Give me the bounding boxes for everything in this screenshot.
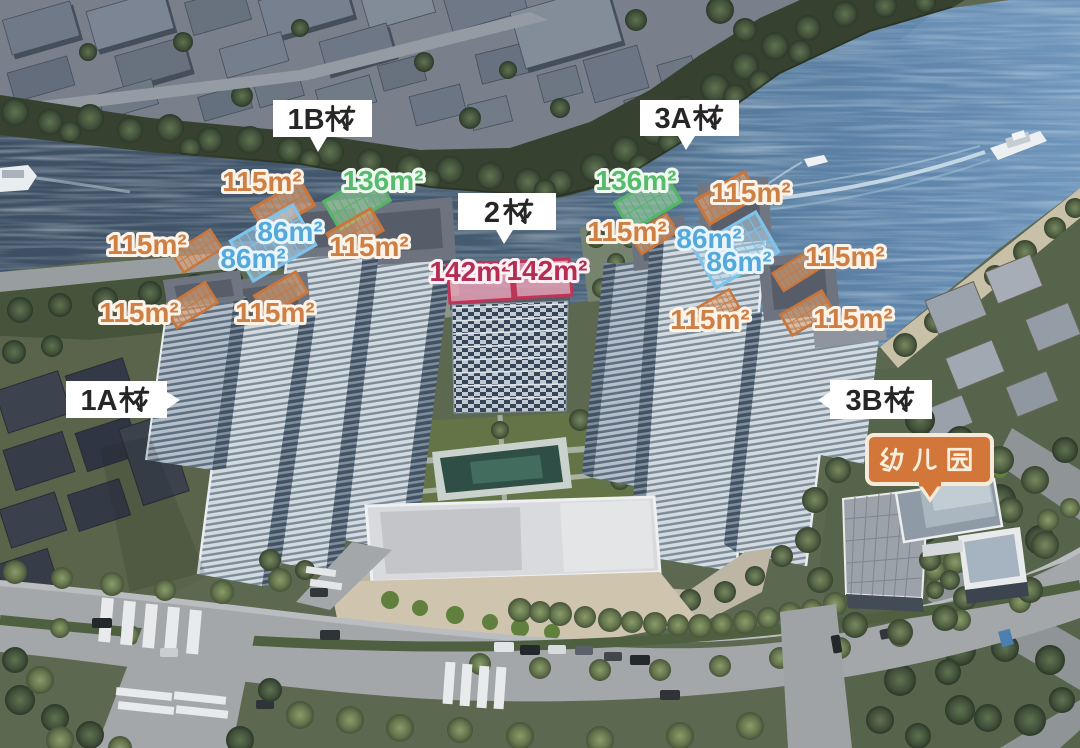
svg-text:115m²: 115m² — [711, 177, 790, 208]
svg-text:3B: 3B — [845, 385, 882, 417]
svg-text:115m²: 115m² — [222, 166, 301, 197]
svg-text:115m²: 115m² — [670, 304, 749, 335]
svg-text:115m²: 115m² — [107, 229, 186, 260]
svg-text:115m²: 115m² — [99, 297, 178, 328]
svg-text:115m²: 115m² — [329, 231, 408, 262]
svg-text:142m²: 142m² — [507, 255, 588, 286]
svg-text:115m²: 115m² — [235, 297, 314, 328]
svg-text:115m²: 115m² — [587, 216, 666, 247]
svg-text:142m²: 142m² — [430, 256, 511, 287]
svg-text:115m²: 115m² — [805, 241, 884, 272]
svg-text:1B: 1B — [287, 104, 324, 136]
svg-text:115m²: 115m² — [813, 303, 892, 334]
svg-text:86m²: 86m² — [706, 246, 771, 277]
svg-text:86m²: 86m² — [220, 243, 285, 274]
svg-text:1A: 1A — [80, 385, 117, 417]
svg-text:136m²: 136m² — [343, 165, 424, 196]
svg-text:136m²: 136m² — [596, 165, 677, 196]
svg-text:2: 2 — [484, 197, 500, 229]
svg-text:3A: 3A — [654, 103, 691, 135]
